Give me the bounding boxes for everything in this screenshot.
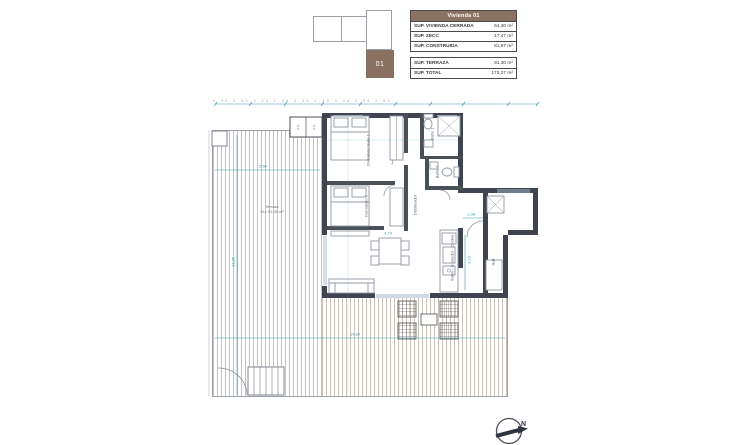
north-arrow: N bbox=[496, 419, 528, 444]
north-arrow-bar bbox=[496, 430, 519, 436]
room-label-terraza: Terraza SU: 91,30 m² bbox=[260, 204, 284, 214]
top-dimension-row: 1,20 3,50 3,23 1,08 2,35 1,40 3,05 0,95 … bbox=[213, 99, 540, 103]
wardrobe-dorm2 bbox=[390, 188, 403, 226]
room-label-bano1: Baño 1 bbox=[430, 128, 435, 141]
room-label-dorm2: Dormitorio 2 bbox=[364, 195, 369, 217]
room-label-distribuidor: Distribuidor bbox=[413, 195, 418, 215]
outdoor-coffee-table bbox=[421, 314, 437, 325]
ac-unit-label: A.A. bbox=[312, 124, 316, 130]
outdoor-armchair bbox=[398, 323, 416, 339]
dining-table bbox=[379, 238, 401, 264]
dim-left-height: 13,35 bbox=[231, 257, 236, 267]
ac-unit-label: A.A. bbox=[296, 124, 300, 130]
terrace-pillar bbox=[212, 131, 227, 146]
room-label-suite: Dormitorio Suite 1 bbox=[366, 134, 371, 166]
dim-terrace-width: 5,50 bbox=[259, 164, 267, 169]
dim-bottom-width: 14,80 bbox=[350, 332, 360, 337]
terraza-area: SU: 91,30 m² bbox=[260, 209, 284, 214]
toilet-bath2 bbox=[442, 168, 452, 176]
outdoor-armchair bbox=[440, 323, 458, 339]
dim-kitchen-height: 3,23 bbox=[467, 256, 472, 264]
room-label-bano2: Baño 2 bbox=[435, 166, 440, 179]
outdoor-armchair bbox=[398, 301, 416, 317]
room-label-hall: Hall bbox=[491, 259, 496, 266]
terrace-structures bbox=[212, 131, 284, 395]
room-label-salon: Salón - Comedor - Cocina bbox=[450, 235, 455, 281]
plan-drawing: N bbox=[0, 0, 740, 445]
outdoor-furniture bbox=[398, 301, 458, 339]
sink-bath1 bbox=[424, 140, 433, 147]
floorplan-sheet: 01 Vivienda 01 SUP. VIVIENDA CERRADA 64,… bbox=[0, 0, 740, 445]
dim-living-width: 4,74 bbox=[384, 231, 392, 236]
door-swing-arc bbox=[218, 368, 247, 395]
dim-hall-width: 1,08 bbox=[467, 212, 475, 217]
sofa bbox=[329, 279, 374, 293]
north-label: N bbox=[521, 421, 526, 428]
tv-bench bbox=[331, 231, 369, 236]
outdoor-armchair bbox=[440, 301, 458, 317]
ac-units-box bbox=[290, 117, 322, 137]
